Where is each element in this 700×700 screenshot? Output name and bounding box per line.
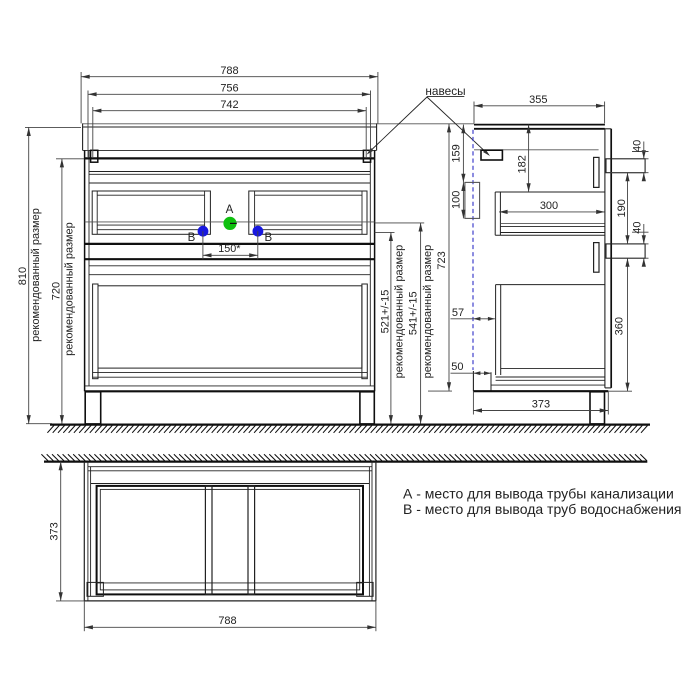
svg-text:300: 300 — [540, 200, 558, 212]
svg-text:рекомендованный размер: рекомендованный размер — [422, 245, 434, 379]
svg-text:355: 355 — [529, 94, 547, 106]
svg-text:рекомендованный размер: рекомендованный размер — [394, 245, 406, 379]
svg-text:788: 788 — [220, 65, 238, 77]
svg-text:навесы: навесы — [425, 84, 465, 98]
svg-text:788: 788 — [218, 615, 236, 627]
svg-text:рекомендованный размер: рекомендованный размер — [30, 208, 42, 342]
svg-text:756: 756 — [220, 83, 238, 95]
svg-text:182: 182 — [516, 155, 528, 173]
svg-text:190: 190 — [616, 199, 628, 217]
svg-text:А: А — [226, 204, 234, 216]
svg-text:40: 40 — [632, 140, 644, 152]
svg-text:150*: 150* — [218, 243, 241, 255]
svg-text:360: 360 — [613, 317, 625, 335]
svg-text:В: В — [264, 232, 272, 244]
svg-text:рекомендованный размер: рекомендованный размер — [64, 222, 76, 356]
svg-text:В - место для вывода труб водо: В - место для вывода труб водоснабжения — [403, 501, 682, 517]
svg-text:40: 40 — [632, 221, 644, 233]
svg-text:742: 742 — [220, 99, 238, 111]
svg-text:159: 159 — [451, 144, 463, 162]
svg-text:810: 810 — [17, 267, 29, 285]
svg-text:А - место для вывода трубы кан: А - место для вывода трубы канализации — [403, 486, 674, 502]
svg-text:723: 723 — [436, 251, 448, 269]
svg-text:100: 100 — [451, 191, 463, 209]
svg-text:50: 50 — [451, 361, 463, 373]
svg-text:373: 373 — [48, 522, 60, 540]
svg-text:В: В — [188, 232, 196, 244]
svg-text:541+/-15: 541+/-15 — [408, 291, 420, 335]
svg-text:720: 720 — [50, 282, 62, 300]
svg-text:521+/-15: 521+/-15 — [380, 290, 392, 334]
svg-text:57: 57 — [452, 307, 464, 319]
svg-text:373: 373 — [532, 399, 550, 411]
